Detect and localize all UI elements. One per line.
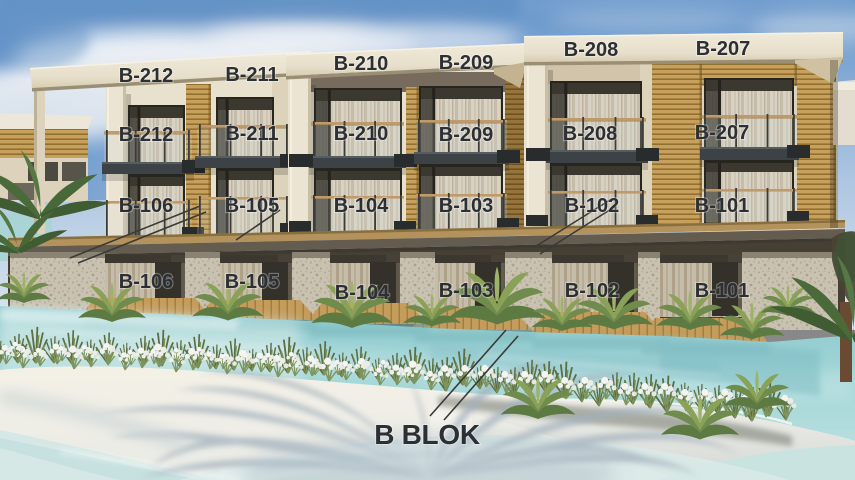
svg-text:B-207: B-207: [695, 122, 749, 144]
svg-text:B-212: B-212: [119, 65, 173, 87]
svg-text:B-208: B-208: [564, 39, 618, 61]
svg-text:B-207: B-207: [696, 38, 750, 60]
svg-text:B-211: B-211: [225, 123, 278, 145]
svg-text:B-103: B-103: [439, 280, 493, 302]
svg-text:B-104: B-104: [334, 195, 389, 217]
svg-text:B-208: B-208: [563, 123, 617, 145]
svg-text:B-210: B-210: [334, 123, 388, 145]
svg-text:B-211: B-211: [225, 64, 278, 86]
svg-text:B-101: B-101: [695, 280, 749, 302]
svg-text:B-103: B-103: [439, 195, 493, 217]
svg-text:B-104: B-104: [335, 282, 390, 304]
svg-text:B-101: B-101: [695, 195, 749, 217]
svg-text:B-102: B-102: [565, 195, 619, 217]
svg-text:B-105: B-105: [225, 271, 279, 293]
svg-text:B-102: B-102: [565, 280, 619, 302]
svg-text:B-106: B-106: [119, 195, 173, 217]
svg-text:B-210: B-210: [334, 53, 388, 75]
svg-text:B BLOK: B BLOK: [374, 419, 480, 450]
svg-text:B-106: B-106: [119, 271, 173, 293]
svg-text:B-212: B-212: [119, 124, 173, 146]
svg-text:B-209: B-209: [439, 124, 493, 146]
svg-text:B-105: B-105: [225, 195, 279, 217]
svg-text:B-209: B-209: [439, 52, 493, 74]
